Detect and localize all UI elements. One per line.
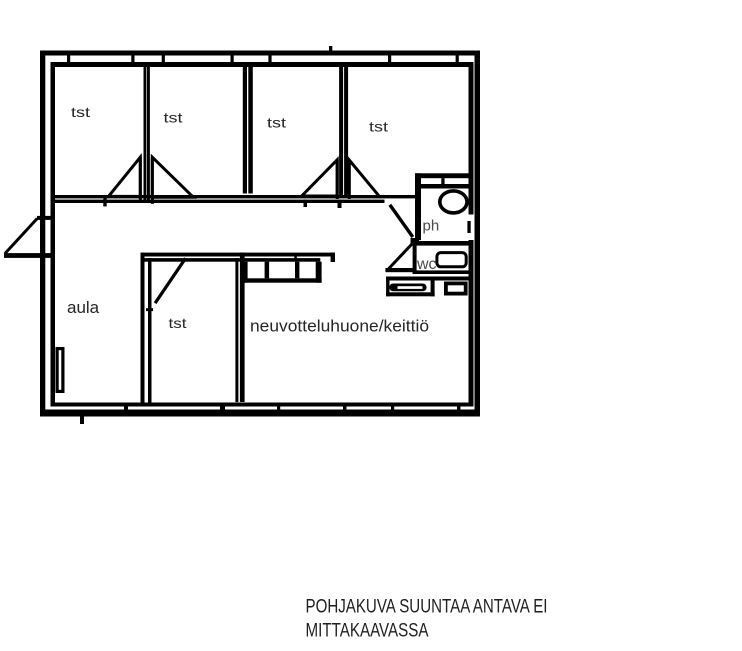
svg-text:tst: tst bbox=[169, 315, 187, 331]
svg-text:neuvotteluhuone/keittiö: neuvotteluhuone/keittiö bbox=[250, 317, 429, 336]
svg-text:tst: tst bbox=[164, 110, 183, 126]
svg-text:POHJAKUVA SUUNTAA ANTAVA EI: POHJAKUVA SUUNTAA ANTAVA EI bbox=[306, 597, 548, 618]
svg-text:tst: tst bbox=[369, 119, 388, 135]
svg-text:MITTAKAAVASSA: MITTAKAAVASSA bbox=[306, 621, 429, 642]
svg-text:aula: aula bbox=[67, 298, 100, 317]
svg-text:wc: wc bbox=[416, 256, 437, 273]
svg-text:ph: ph bbox=[423, 218, 440, 235]
svg-text:tst: tst bbox=[71, 104, 90, 120]
svg-text:tst: tst bbox=[267, 115, 286, 131]
